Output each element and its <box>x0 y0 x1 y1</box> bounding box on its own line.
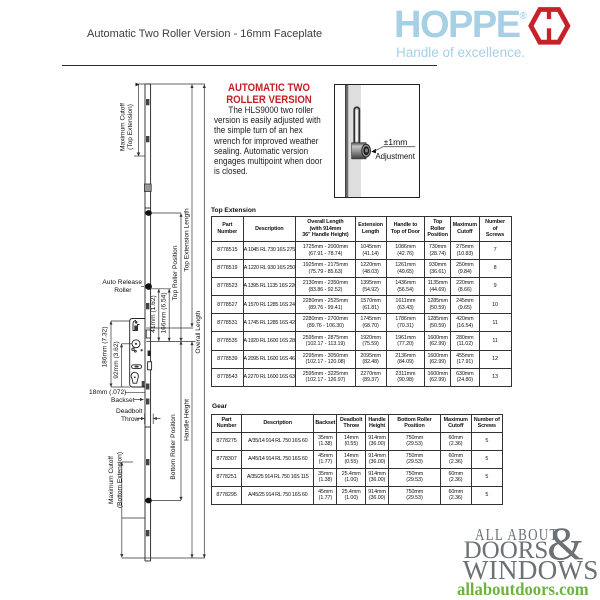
svg-text:Auto Release: Auto Release <box>102 279 142 286</box>
svg-text:(Top Extension): (Top Extension) <box>127 104 134 150</box>
svg-text:Roller: Roller <box>114 287 132 294</box>
svg-text:Top Extension Length: Top Extension Length <box>184 208 191 272</box>
svg-text:92mm (3.62): 92mm (3.62) <box>113 341 120 378</box>
svg-text:Top Roller Position: Top Roller Position <box>172 245 179 300</box>
svg-text:Handle Height: Handle Height <box>184 399 191 441</box>
svg-text:Maximum Cutoff: Maximum Cutoff <box>119 103 126 151</box>
svg-text:18mm (.072): 18mm (.072) <box>89 389 126 396</box>
svg-text:±1mm: ±1mm <box>384 137 408 147</box>
svg-text:Overall Length: Overall Length <box>195 310 202 353</box>
svg-text:186mm (7.32): 186mm (7.32) <box>102 326 109 367</box>
svg-text:Throw: Throw <box>121 416 140 423</box>
svg-text:(Bottom Extension): (Bottom Extension) <box>117 452 124 508</box>
svg-text:Adjustment: Adjustment <box>375 151 415 161</box>
svg-text:Deadbolt: Deadbolt <box>116 408 143 415</box>
svg-text:Backset: Backset <box>111 397 135 404</box>
svg-text:41mm (1.62): 41mm (1.62) <box>150 295 157 332</box>
svg-text:Bottom Roller Position: Bottom Roller Position <box>170 414 177 480</box>
svg-text:Maximum Cutoff: Maximum Cutoff <box>108 456 115 504</box>
svg-text:166mm (6.54): 166mm (6.54) <box>160 292 167 333</box>
